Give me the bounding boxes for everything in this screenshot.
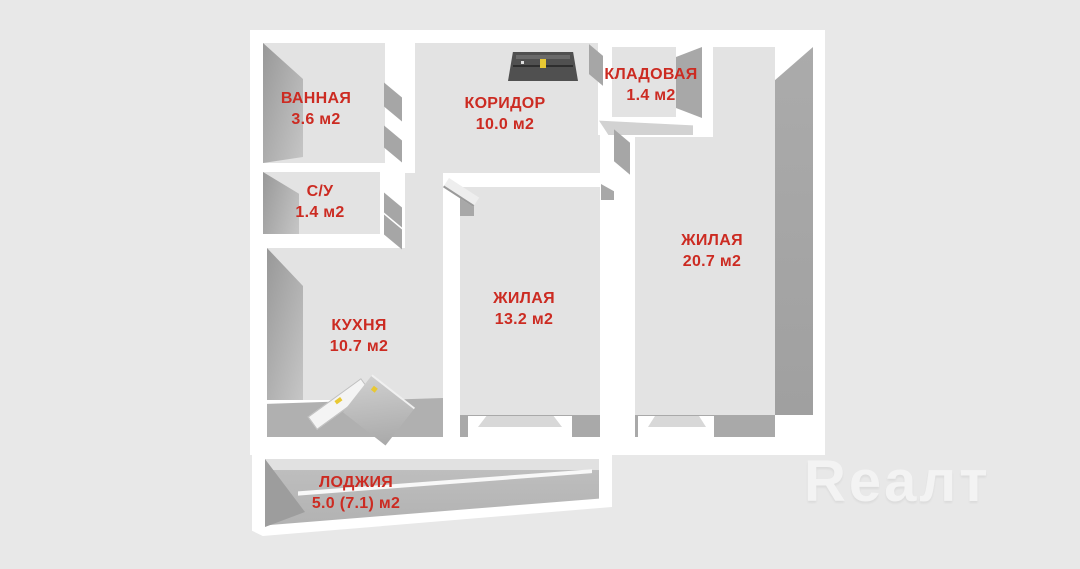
kitchen-door-handle-2 xyxy=(371,386,378,393)
room-area: 20.7 м2 xyxy=(642,251,782,272)
room-name: ЛОДЖИЯ xyxy=(286,472,426,493)
floorplan-canvas: ВАННАЯ 3.6 м2 С/У 1.4 м2 КОРИДОР 10.0 м2… xyxy=(0,0,1080,569)
room-label-bathroom: ВАННАЯ 3.6 м2 xyxy=(246,88,386,130)
floor-passage xyxy=(405,173,443,253)
room-name: ЖИЛАЯ xyxy=(454,288,594,309)
entry-door-icon xyxy=(508,52,578,81)
room-area: 10.7 м2 xyxy=(289,336,429,357)
loggia-floor-strip xyxy=(265,459,599,470)
room-area: 1.4 м2 xyxy=(250,202,390,223)
living-middle-window-sill xyxy=(478,416,562,427)
floor-living-large xyxy=(635,137,713,415)
room-name: КУХНЯ xyxy=(289,315,429,336)
room-area: 1.4 м2 xyxy=(581,85,721,106)
room-area: 13.2 м2 xyxy=(454,309,594,330)
room-label-living-middle: ЖИЛАЯ 13.2 м2 xyxy=(454,288,594,330)
room-name: КЛАДОВАЯ xyxy=(581,64,721,85)
room-label-living-large: ЖИЛАЯ 20.7 м2 xyxy=(642,230,782,272)
living-large-window-sill xyxy=(648,416,706,427)
room-label-loggia: ЛОДЖИЯ 5.0 (7.1) м2 xyxy=(286,472,426,514)
room-label-storage: КЛАДОВАЯ 1.4 м2 xyxy=(581,64,721,106)
room-area: 10.0 м2 xyxy=(435,114,575,135)
room-area: 3.6 м2 xyxy=(246,109,386,130)
room-name: ЖИЛАЯ xyxy=(642,230,782,251)
room-name: С/У xyxy=(250,181,390,202)
room-name: КОРИДОР xyxy=(435,93,575,114)
realt-watermark-logo: Rеалт xyxy=(804,448,991,515)
room-label-wc: С/У 1.4 м2 xyxy=(250,181,390,223)
room-label-kitchen: КУХНЯ 10.7 м2 xyxy=(289,315,429,357)
kitchen-door-handle xyxy=(334,397,342,404)
entry-door-pin xyxy=(521,61,524,64)
room-area: 5.0 (7.1) м2 xyxy=(286,493,426,514)
room-name: ВАННАЯ xyxy=(246,88,386,109)
entry-door-handle xyxy=(540,59,546,68)
room-label-corridor: КОРИДОР 10.0 м2 xyxy=(435,93,575,135)
